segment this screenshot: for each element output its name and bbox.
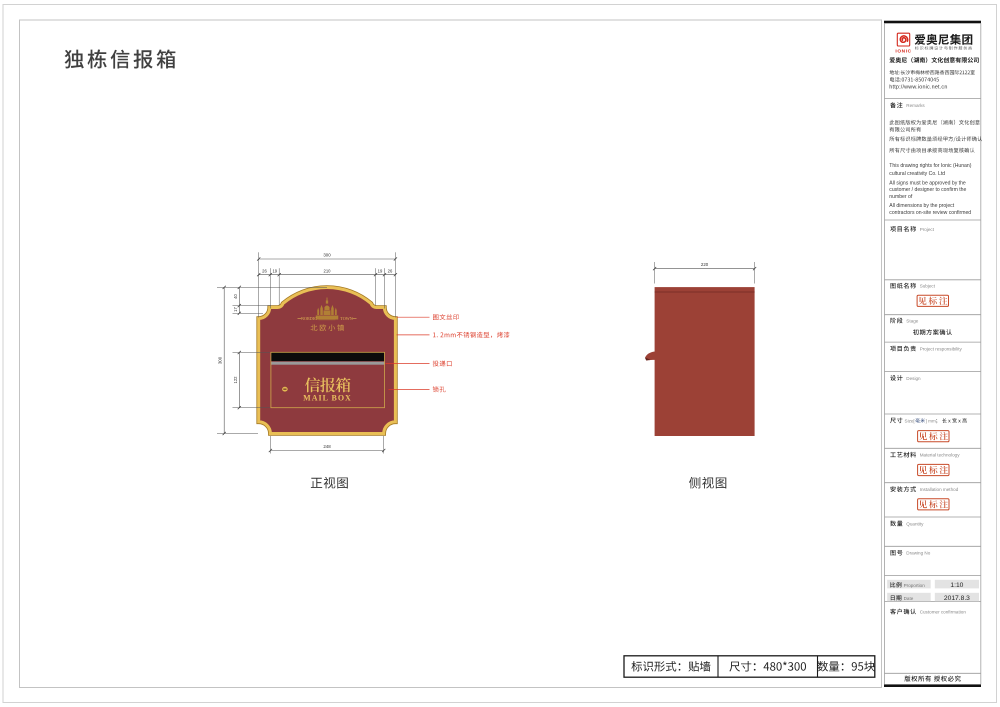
svg-text:MAIL BOX: MAIL BOX: [303, 393, 352, 402]
svg-text:contractors on-site review con: contractors on-site review confirmed: [889, 210, 971, 216]
svg-text:Proportion: Proportion: [904, 583, 926, 588]
svg-text:26: 26: [388, 268, 393, 273]
svg-text:Project responsibility: Project responsibility: [920, 347, 963, 352]
svg-text:220: 220: [701, 262, 709, 267]
svg-text:19: 19: [378, 268, 383, 273]
svg-text:17: 17: [233, 307, 238, 312]
svg-text:Subject: Subject: [920, 284, 936, 289]
svg-text:300: 300: [323, 253, 331, 258]
svg-text:cultural creativity Co. Ltd: cultural creativity Co. Ltd: [889, 171, 945, 177]
svg-text:248: 248: [323, 444, 331, 449]
svg-text:26: 26: [262, 268, 267, 273]
svg-text:Stage: Stage: [906, 319, 918, 324]
svg-text:] mm: ] mm: [926, 418, 936, 423]
svg-text:19: 19: [272, 268, 277, 273]
svg-text:Material technology: Material technology: [920, 453, 961, 458]
svg-text:This drawing rights for Ionic: This drawing rights for Ionic (Hunan): [889, 163, 971, 169]
svg-text:40: 40: [233, 294, 238, 299]
svg-text:Date: Date: [904, 596, 914, 601]
svg-text:All signs must be approved by: All signs must be approved by the: [889, 180, 966, 186]
svg-text:300: 300: [218, 356, 223, 364]
svg-text:Customer confirmation: Customer confirmation: [920, 610, 967, 615]
svg-text:2017.8.3: 2017.8.3: [944, 595, 970, 602]
svg-text:1:10: 1:10: [950, 582, 963, 589]
svg-text:TOWN: TOWN: [340, 316, 352, 321]
svg-text:All dimensions by the project: All dimensions by the project: [889, 203, 954, 209]
svg-text:210: 210: [324, 268, 332, 273]
svg-text:122: 122: [233, 376, 238, 384]
svg-text:Project: Project: [920, 227, 935, 232]
svg-text:Design: Design: [906, 376, 921, 381]
svg-text:http://www.ionic.net.cn: http://www.ionic.net.cn: [889, 85, 947, 91]
svg-text:customer / designer to confirm: customer / designer to confirm the: [889, 187, 966, 193]
svg-text:Quantity: Quantity: [906, 521, 924, 526]
svg-text:number of: number of: [889, 194, 913, 200]
svg-text:Installation method: Installation method: [920, 487, 959, 492]
svg-text:NORDIC: NORDIC: [301, 316, 317, 321]
svg-text:Remarks: Remarks: [906, 103, 925, 108]
svg-text:Drawing No: Drawing No: [906, 551, 930, 556]
svg-text:Size[: Size[: [905, 418, 916, 423]
svg-text:IONIC: IONIC: [895, 48, 911, 54]
